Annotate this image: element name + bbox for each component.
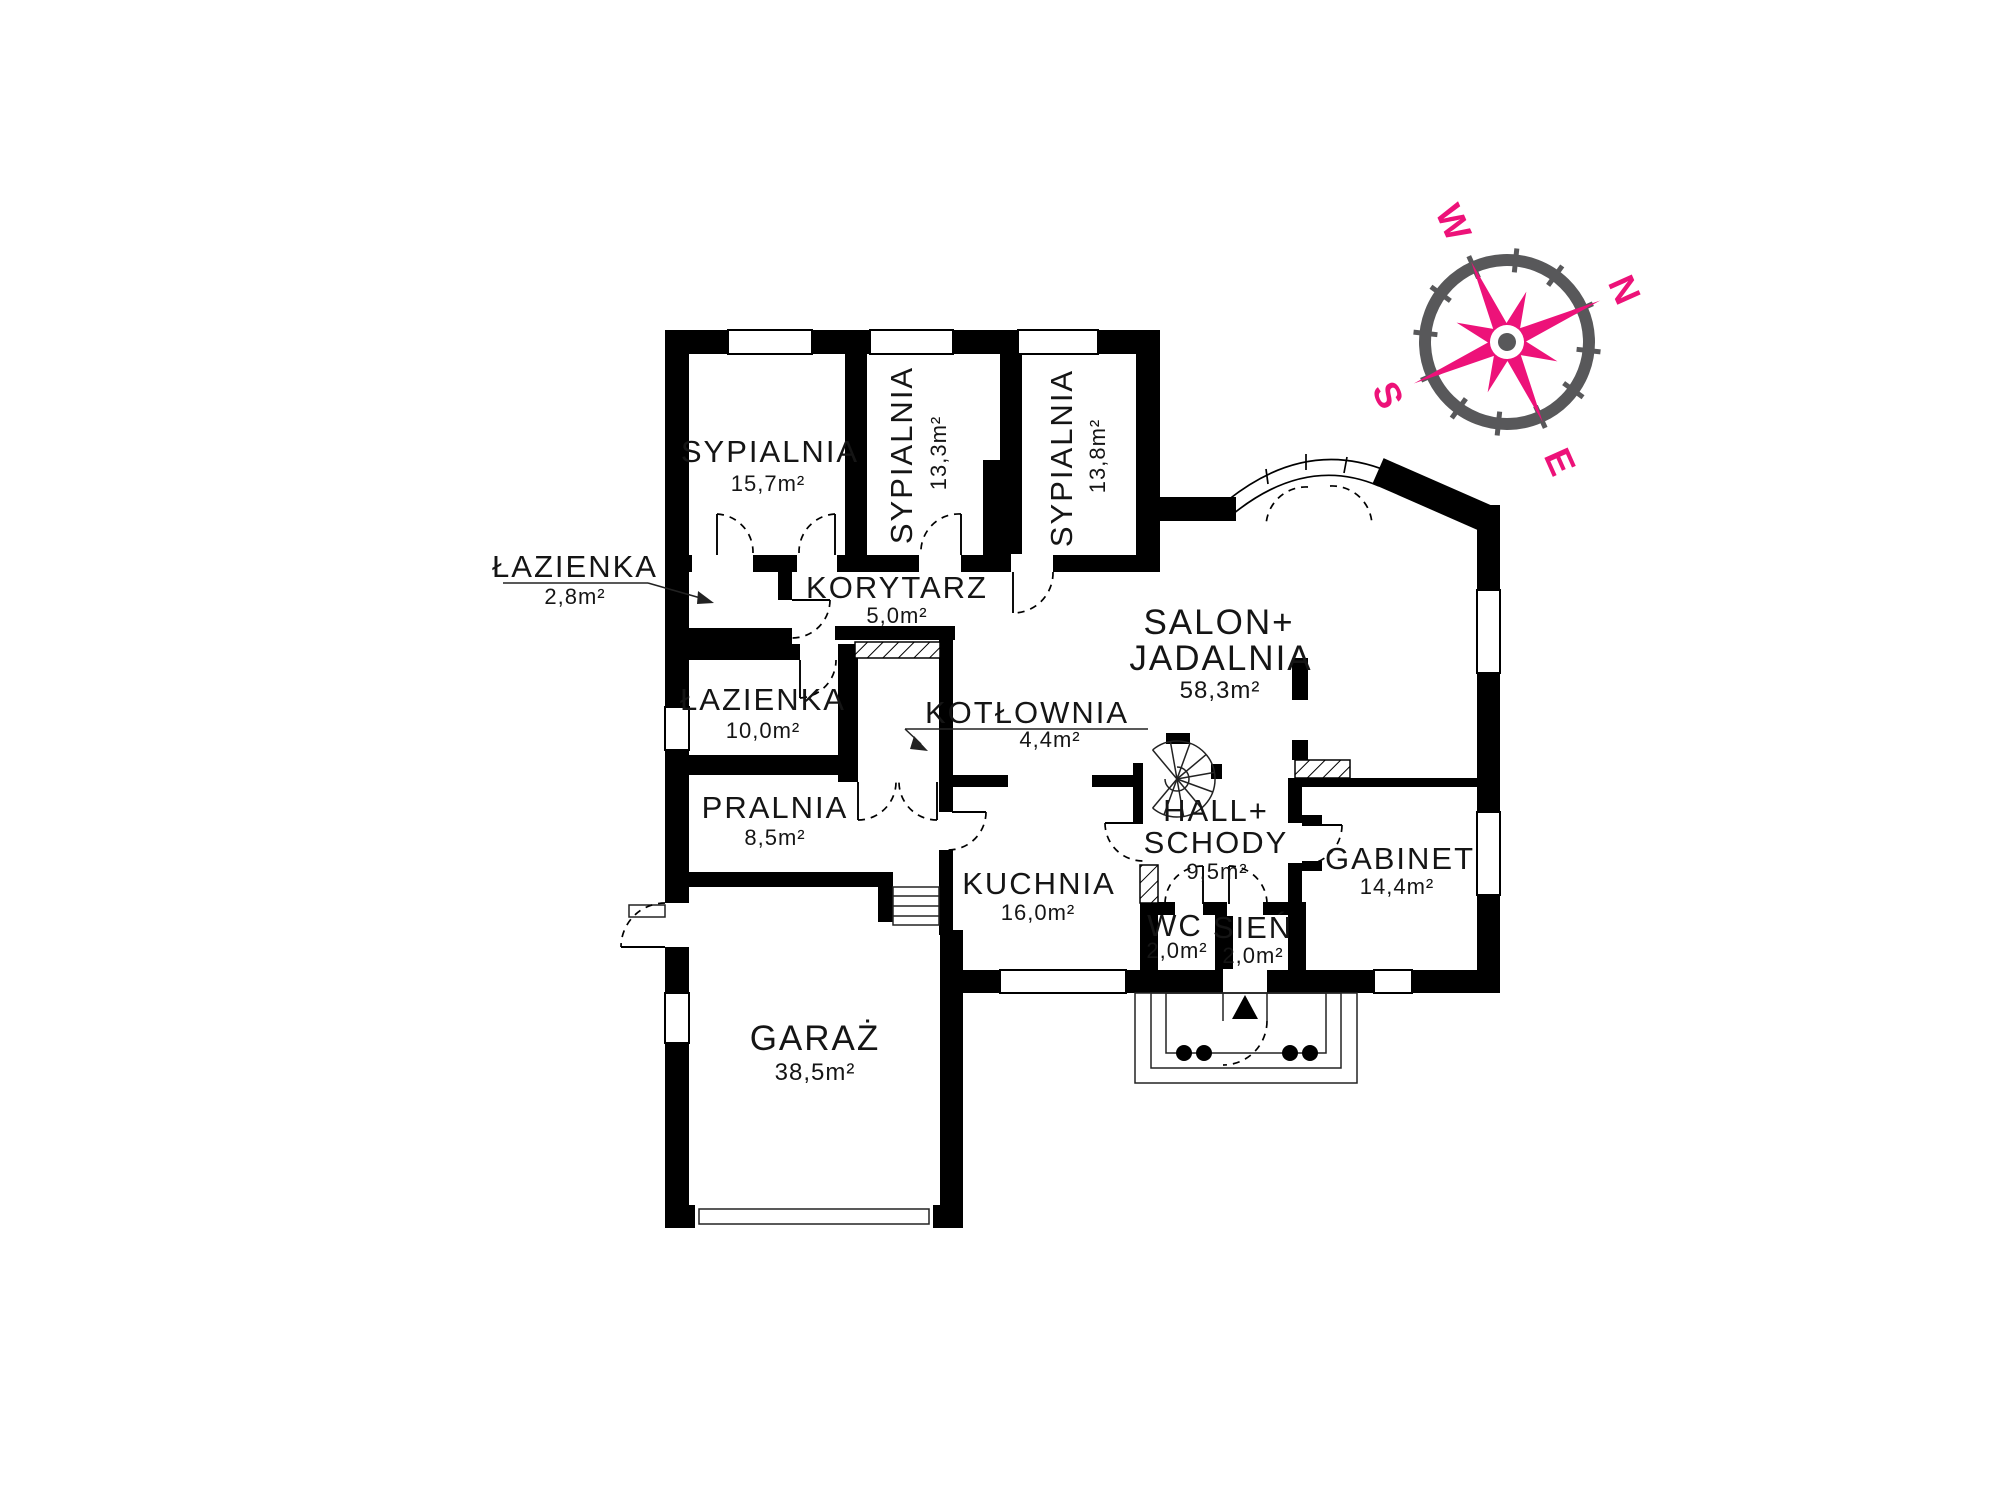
porch-column [1282, 1045, 1298, 1061]
compass-south-label: S [1364, 375, 1411, 414]
window-living-east [1477, 590, 1500, 673]
area-hall: 9,5m² [1186, 859, 1247, 884]
area-wc: 2,0m² [1146, 938, 1207, 963]
label-hall-1: HALL+ [1163, 793, 1269, 828]
label-kitchen: KUCHNIA [962, 866, 1116, 901]
hatch-chimney-wc [1140, 865, 1158, 903]
area-bedroom3: 13,8m² [1085, 419, 1110, 493]
entrance-porch [1135, 993, 1357, 1083]
floor-plan-page: SYPIALNIA 15,7m² SYPIALNIA 13,3m² SYPIAL… [0, 0, 2000, 1500]
window-bedroom1 [728, 330, 812, 354]
area-office: 14,4m² [1360, 874, 1434, 899]
compass-west-label: W [1427, 198, 1479, 247]
hatch-chimney-office [1295, 760, 1350, 778]
label-bedroom1: SYPIALNIA [681, 434, 859, 469]
window-garage [665, 993, 689, 1043]
hatch-boiler-shaft [855, 642, 940, 658]
window-office-south [1374, 970, 1412, 993]
area-living: 58,3m² [1180, 677, 1261, 704]
compass-rose-icon: N E S W [1309, 146, 1702, 535]
label-garage: GARAŻ [750, 1019, 881, 1058]
label-hall-2: SCHODY [1144, 825, 1289, 860]
label-laundry: PRALNIA [702, 790, 849, 825]
area-vestibule: 2,0m² [1222, 943, 1283, 968]
label-boiler: KOTŁOWNIA [925, 695, 1129, 730]
entrance-arrow [1232, 995, 1258, 1019]
area-bathroom: 10,0m² [726, 718, 800, 743]
area-bedroom1: 15,7m² [731, 471, 805, 496]
area-laundry: 8,5m² [744, 825, 805, 850]
label-office: GABINET [1325, 841, 1475, 876]
area-garage: 38,5m² [775, 1059, 856, 1086]
area-bedroom2: 13,3m² [926, 416, 951, 490]
label-living-2: JADALNIA [1129, 639, 1312, 678]
label-vestibule: SIEŃ [1213, 910, 1293, 945]
porch-column [1176, 1045, 1192, 1061]
area-kitchen: 16,0m² [1001, 900, 1075, 925]
window-bedroom2 [870, 330, 953, 354]
stairs [893, 887, 939, 925]
label-living-1: SALON+ [1143, 603, 1294, 642]
window-kitchen [1000, 970, 1126, 993]
porch-column [1196, 1045, 1212, 1061]
area-bath-small: 2,8m² [544, 584, 605, 609]
porch-column [1302, 1045, 1318, 1061]
bay-window [1228, 454, 1387, 527]
label-bedroom2: SYPIALNIA [884, 366, 919, 544]
floor-plan-drawing: SYPIALNIA 15,7m² SYPIALNIA 13,3m² SYPIAL… [0, 0, 2000, 1500]
area-boiler: 4,4m² [1019, 727, 1080, 752]
compass-north-label: N [1600, 269, 1648, 310]
label-corridor: KORYTARZ [806, 570, 988, 605]
label-bath-small: ŁAZIENKA [492, 549, 658, 584]
window-office-east [1477, 812, 1500, 895]
label-bathroom: ŁAZIENKA [680, 682, 846, 717]
compass-east-label: E [1536, 442, 1583, 481]
label-bedroom3: SYPIALNIA [1044, 369, 1079, 547]
area-corridor: 5,0m² [866, 603, 927, 628]
window-bedroom3 [1018, 330, 1098, 354]
